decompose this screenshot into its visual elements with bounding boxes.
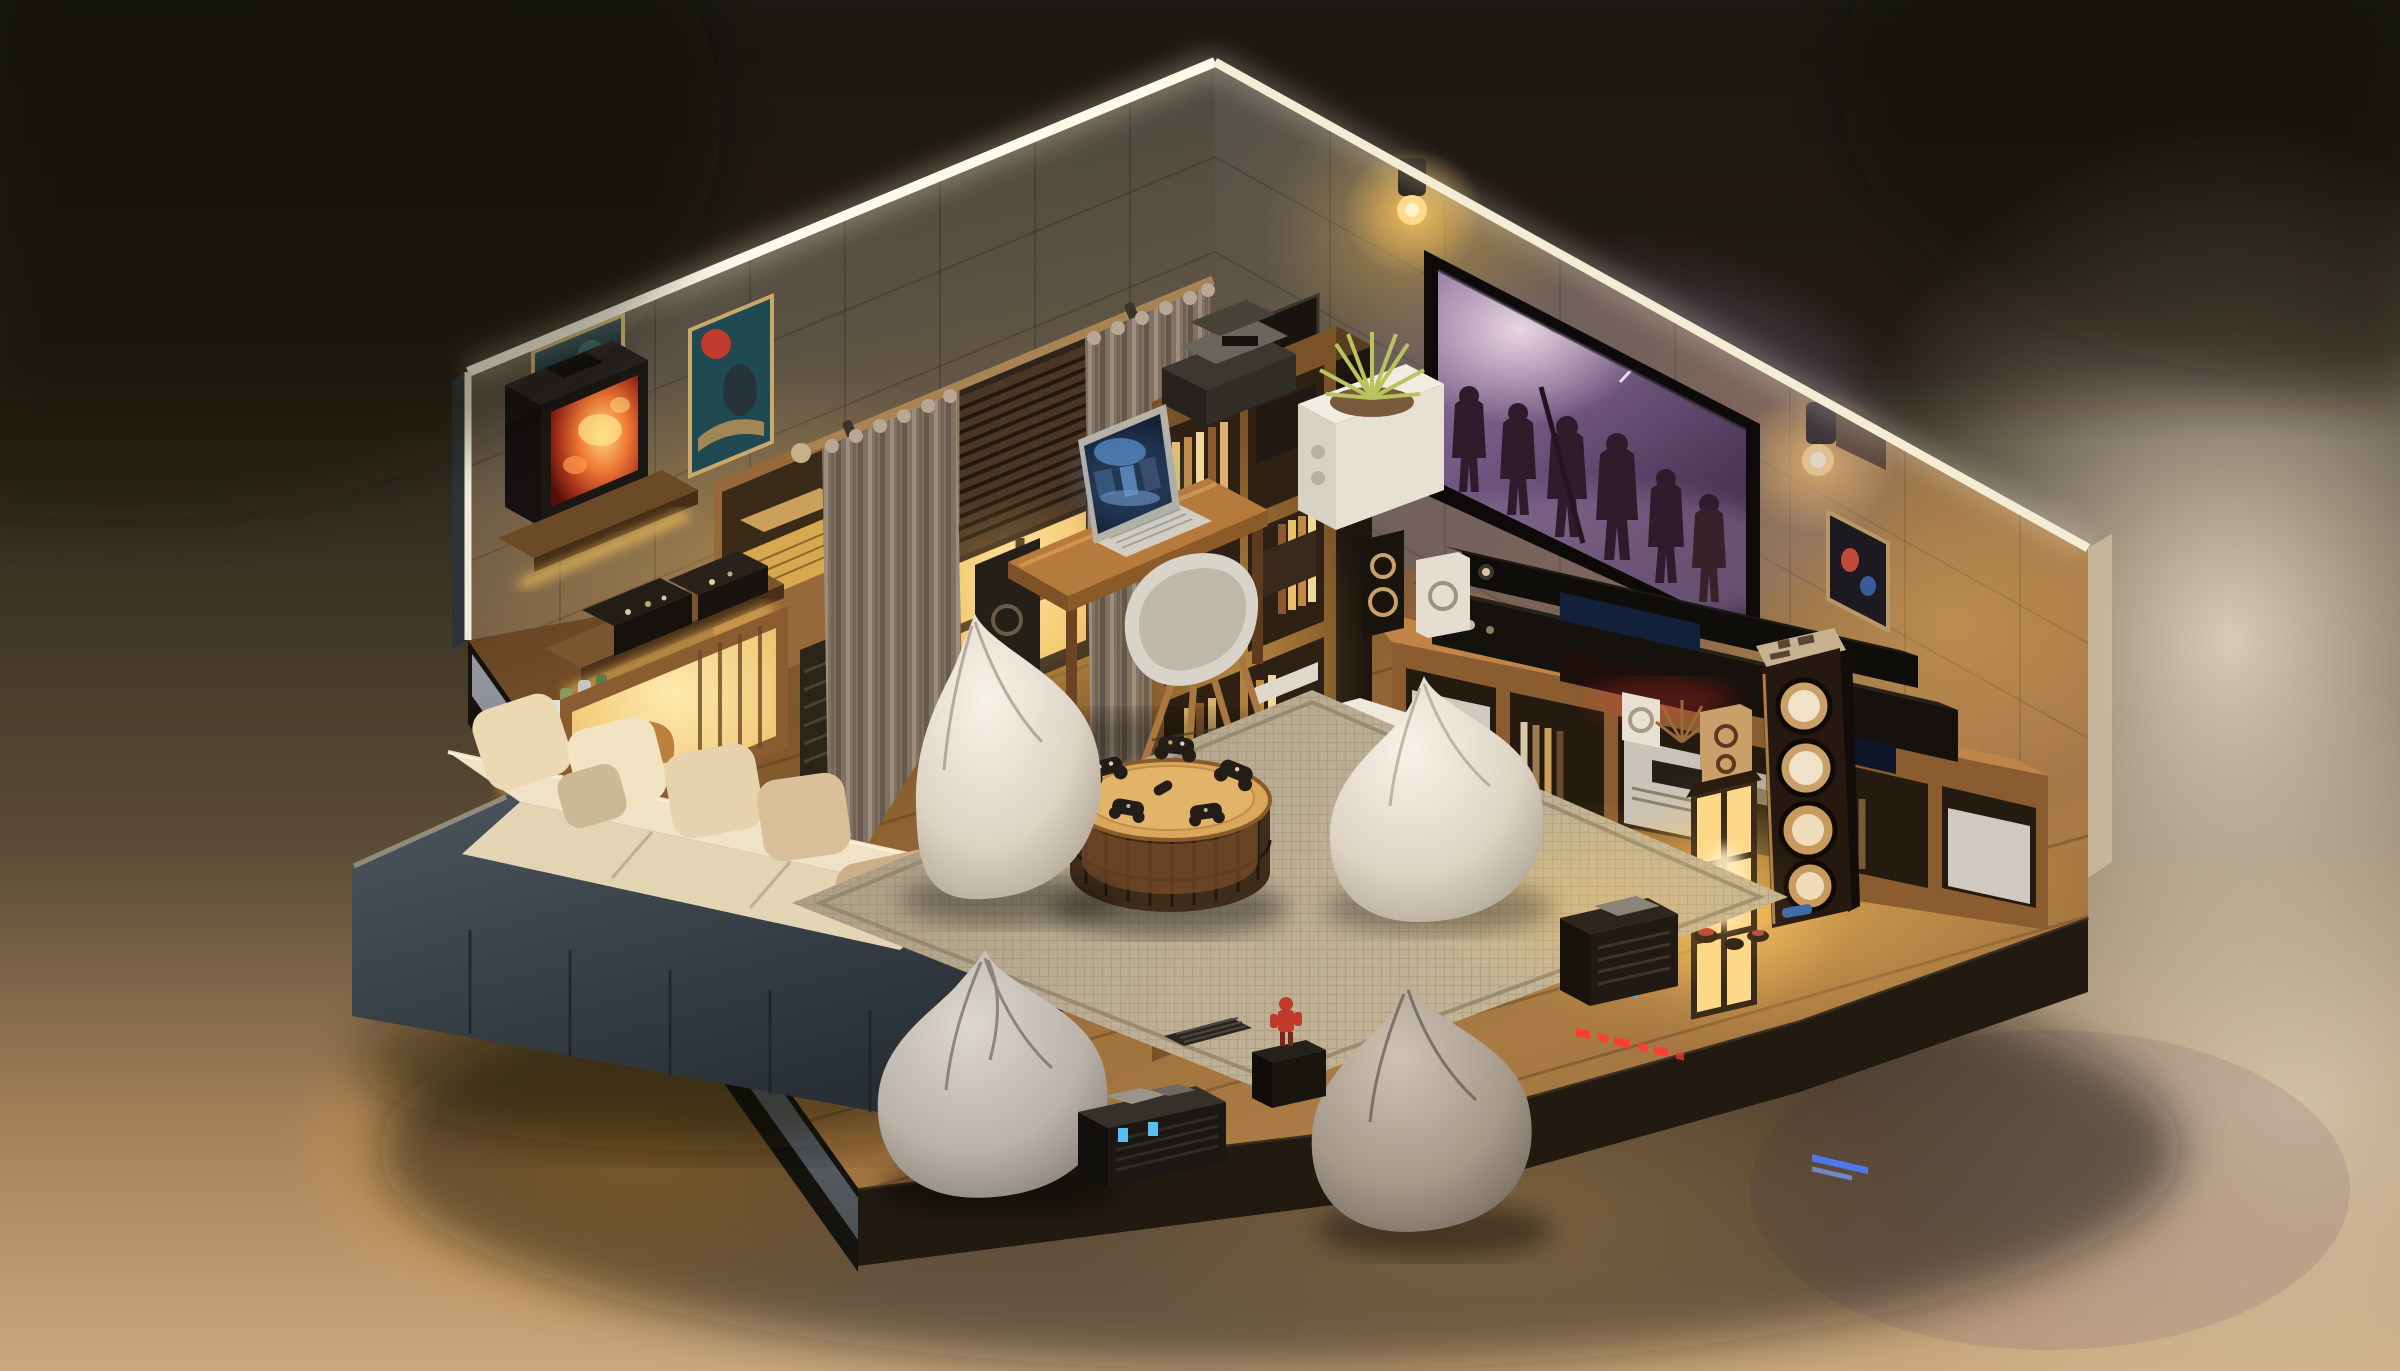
cube-speaker [1622, 692, 1660, 748]
small-speaker-white [1416, 552, 1470, 638]
gaming-room-render [0, 0, 2400, 1371]
small-speaker-dark [1362, 530, 1404, 638]
rod-finial [791, 443, 811, 463]
right-wall-outer-edge [2088, 534, 2112, 878]
scene-canvas [0, 0, 2400, 1371]
